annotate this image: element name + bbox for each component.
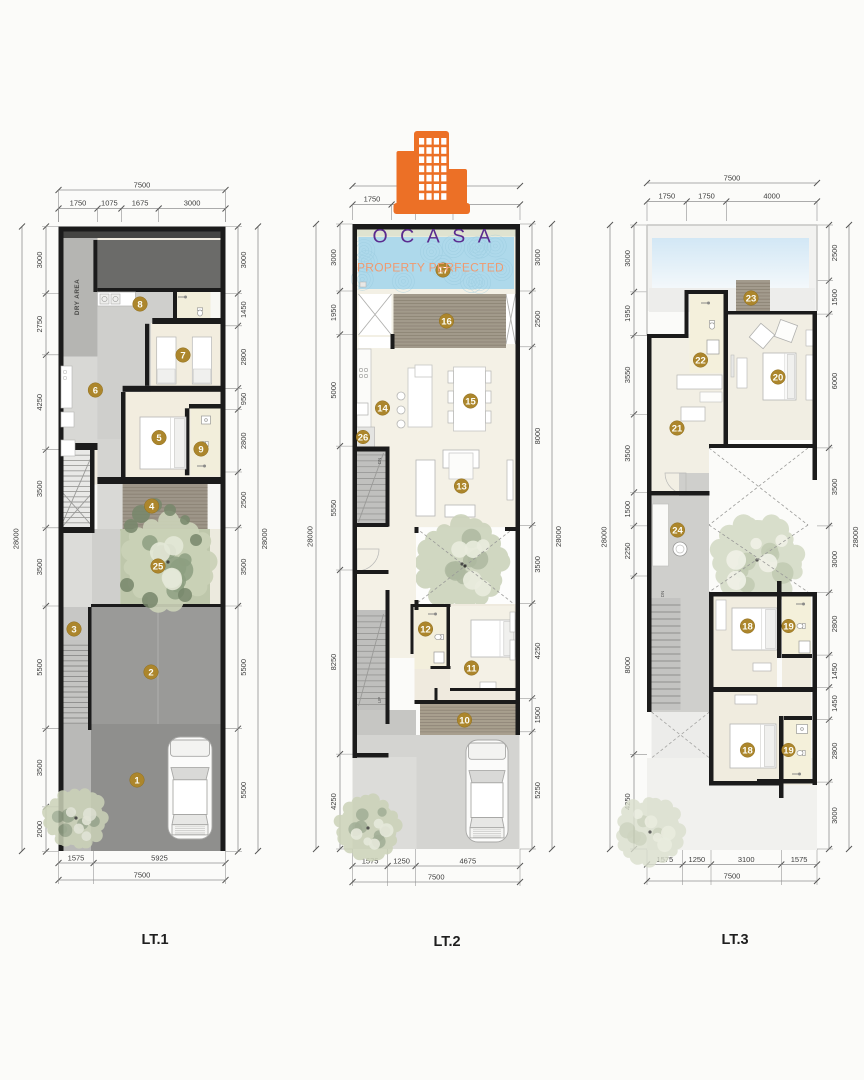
svg-text:3500: 3500 bbox=[35, 480, 44, 497]
svg-text:25: 25 bbox=[153, 561, 164, 572]
svg-text:4: 4 bbox=[149, 501, 155, 512]
svg-text:5250: 5250 bbox=[533, 782, 542, 799]
svg-text:DN: DN bbox=[377, 458, 382, 465]
svg-text:1575: 1575 bbox=[68, 854, 85, 863]
svg-text:1575: 1575 bbox=[791, 855, 808, 864]
svg-text:7500: 7500 bbox=[724, 174, 741, 183]
svg-text:2800: 2800 bbox=[239, 432, 248, 449]
svg-text:2800: 2800 bbox=[830, 743, 839, 760]
svg-text:LT.3: LT.3 bbox=[721, 932, 748, 948]
svg-text:1250: 1250 bbox=[393, 857, 410, 866]
svg-text:3500: 3500 bbox=[623, 445, 632, 462]
svg-text:28000: 28000 bbox=[260, 528, 269, 549]
svg-text:28000: 28000 bbox=[851, 527, 860, 548]
svg-text:4250: 4250 bbox=[35, 394, 44, 411]
svg-text:3000: 3000 bbox=[623, 250, 632, 267]
svg-text:3000: 3000 bbox=[329, 249, 338, 266]
svg-text:19: 19 bbox=[783, 621, 794, 632]
svg-text:1450: 1450 bbox=[239, 301, 248, 318]
svg-text:2000: 2000 bbox=[35, 821, 44, 838]
svg-text:3000: 3000 bbox=[830, 807, 839, 824]
svg-text:3000: 3000 bbox=[184, 199, 201, 208]
svg-text:3000: 3000 bbox=[35, 252, 44, 269]
svg-text:7: 7 bbox=[180, 350, 185, 361]
svg-text:15: 15 bbox=[465, 396, 476, 407]
svg-text:1075: 1075 bbox=[101, 199, 118, 208]
svg-text:2500: 2500 bbox=[533, 311, 542, 328]
svg-text:5: 5 bbox=[156, 433, 162, 444]
svg-text:1: 1 bbox=[134, 775, 140, 786]
svg-text:20: 20 bbox=[773, 372, 784, 383]
svg-text:5500: 5500 bbox=[239, 782, 248, 799]
svg-text:18: 18 bbox=[742, 745, 753, 756]
svg-text:13: 13 bbox=[456, 481, 467, 492]
svg-text:3: 3 bbox=[71, 624, 76, 635]
svg-text:DRY AREA: DRY AREA bbox=[74, 279, 81, 315]
svg-text:18: 18 bbox=[742, 621, 753, 632]
svg-text:3000: 3000 bbox=[239, 252, 248, 269]
svg-text:14: 14 bbox=[377, 403, 388, 414]
svg-text:5500: 5500 bbox=[35, 659, 44, 676]
svg-text:22: 22 bbox=[695, 355, 706, 366]
svg-text:9: 9 bbox=[198, 444, 203, 455]
svg-text:24: 24 bbox=[672, 525, 683, 536]
svg-text:2800: 2800 bbox=[239, 349, 248, 366]
svg-text:28000: 28000 bbox=[600, 527, 609, 548]
svg-text:28000: 28000 bbox=[554, 526, 563, 547]
svg-text:LT.1: LT.1 bbox=[141, 932, 168, 948]
svg-text:950: 950 bbox=[239, 393, 248, 406]
svg-text:1750: 1750 bbox=[698, 192, 715, 201]
svg-text:2800: 2800 bbox=[830, 616, 839, 633]
svg-text:PROPERTY PERFECTED: PROPERTY PERFECTED bbox=[357, 261, 504, 275]
svg-text:1750: 1750 bbox=[70, 199, 87, 208]
svg-text:3500: 3500 bbox=[35, 759, 44, 776]
svg-text:2500: 2500 bbox=[239, 492, 248, 509]
svg-text:4675: 4675 bbox=[459, 857, 476, 866]
svg-text:3550: 3550 bbox=[623, 367, 632, 384]
svg-text:6: 6 bbox=[93, 385, 98, 396]
svg-text:8: 8 bbox=[137, 299, 142, 310]
svg-text:8250: 8250 bbox=[329, 654, 338, 671]
svg-text:1675: 1675 bbox=[132, 199, 149, 208]
svg-text:2750: 2750 bbox=[35, 316, 44, 333]
svg-text:OCASA: OCASA bbox=[373, 226, 504, 248]
svg-text:3500: 3500 bbox=[35, 559, 44, 576]
svg-text:1450: 1450 bbox=[830, 695, 839, 712]
svg-text:LT.2: LT.2 bbox=[433, 934, 460, 950]
svg-text:3000: 3000 bbox=[830, 551, 839, 568]
svg-text:5925: 5925 bbox=[151, 854, 168, 863]
svg-text:1450: 1450 bbox=[830, 663, 839, 680]
svg-text:28000: 28000 bbox=[306, 526, 315, 547]
svg-text:19: 19 bbox=[783, 745, 794, 756]
svg-text:3000: 3000 bbox=[533, 249, 542, 266]
svg-text:1500: 1500 bbox=[623, 501, 632, 518]
svg-text:UP: UP bbox=[377, 697, 382, 703]
svg-text:7500: 7500 bbox=[134, 871, 151, 880]
svg-text:8000: 8000 bbox=[533, 428, 542, 445]
svg-text:11: 11 bbox=[466, 663, 477, 674]
svg-text:28000: 28000 bbox=[12, 528, 21, 549]
svg-text:26: 26 bbox=[358, 432, 369, 443]
svg-text:10: 10 bbox=[459, 715, 470, 726]
svg-text:5550: 5550 bbox=[329, 500, 338, 517]
svg-text:6000: 6000 bbox=[830, 373, 839, 390]
svg-text:3500: 3500 bbox=[239, 559, 248, 576]
svg-text:4250: 4250 bbox=[533, 643, 542, 660]
svg-text:7500: 7500 bbox=[724, 872, 741, 881]
svg-text:1750: 1750 bbox=[658, 192, 675, 201]
svg-text:7500: 7500 bbox=[134, 181, 151, 190]
svg-text:4250: 4250 bbox=[329, 793, 338, 810]
svg-text:12: 12 bbox=[420, 624, 431, 635]
svg-text:2: 2 bbox=[148, 667, 153, 678]
svg-text:7500: 7500 bbox=[428, 873, 445, 882]
svg-text:1750: 1750 bbox=[364, 195, 381, 204]
svg-text:3500: 3500 bbox=[533, 556, 542, 573]
svg-text:1950: 1950 bbox=[623, 305, 632, 322]
svg-text:1500: 1500 bbox=[533, 707, 542, 724]
svg-text:1250: 1250 bbox=[689, 855, 706, 864]
svg-text:1950: 1950 bbox=[329, 304, 338, 321]
svg-text:3100: 3100 bbox=[738, 855, 755, 864]
svg-text:4000: 4000 bbox=[763, 192, 780, 201]
svg-text:5500: 5500 bbox=[239, 659, 248, 676]
svg-text:1500: 1500 bbox=[830, 289, 839, 306]
svg-text:2500: 2500 bbox=[830, 245, 839, 262]
svg-text:8000: 8000 bbox=[623, 657, 632, 674]
svg-text:DN: DN bbox=[660, 591, 665, 598]
svg-text:16: 16 bbox=[441, 316, 452, 327]
svg-text:2250: 2250 bbox=[623, 543, 632, 560]
svg-text:3500: 3500 bbox=[830, 479, 839, 496]
svg-text:5000: 5000 bbox=[329, 382, 338, 399]
svg-text:23: 23 bbox=[746, 293, 757, 304]
svg-text:21: 21 bbox=[672, 423, 683, 434]
